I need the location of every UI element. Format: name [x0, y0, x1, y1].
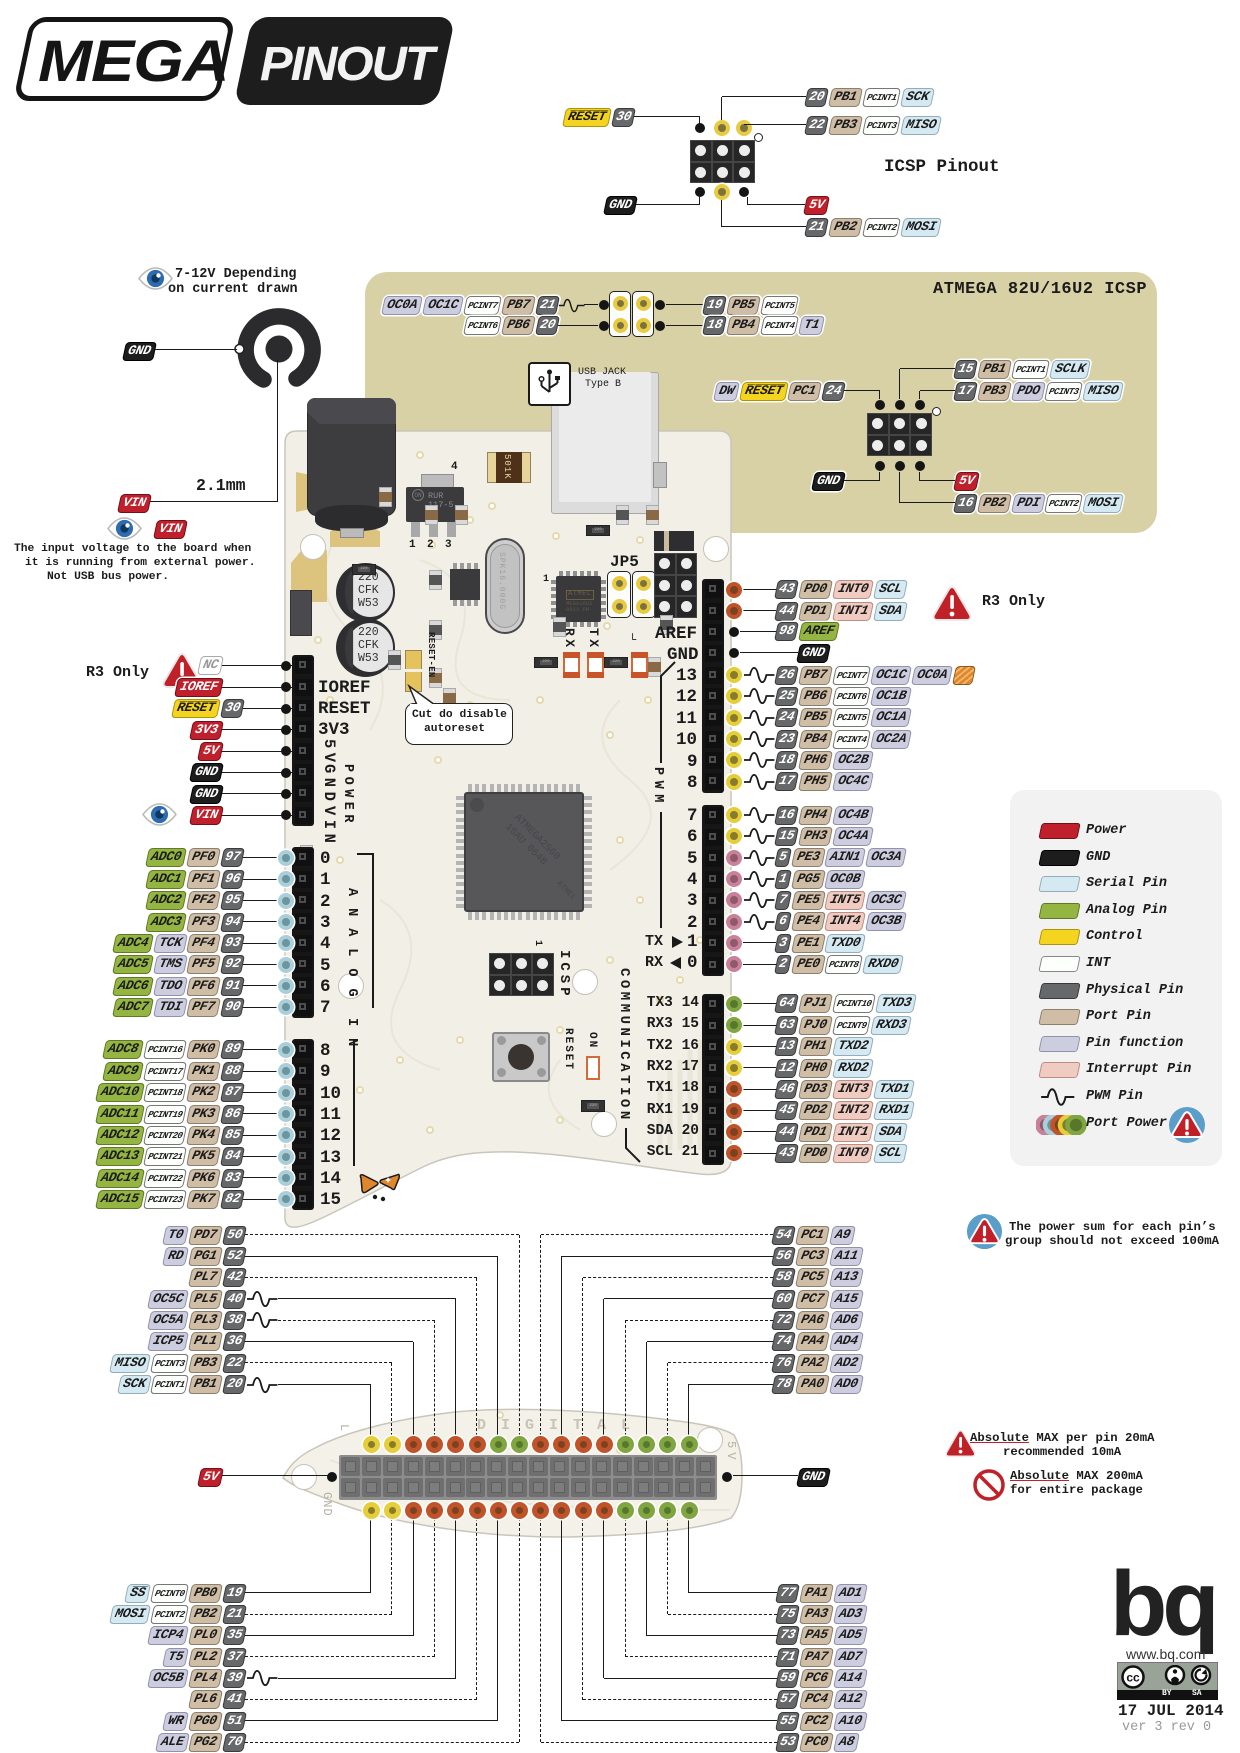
svg-text:cc: cc	[1126, 1671, 1140, 1685]
